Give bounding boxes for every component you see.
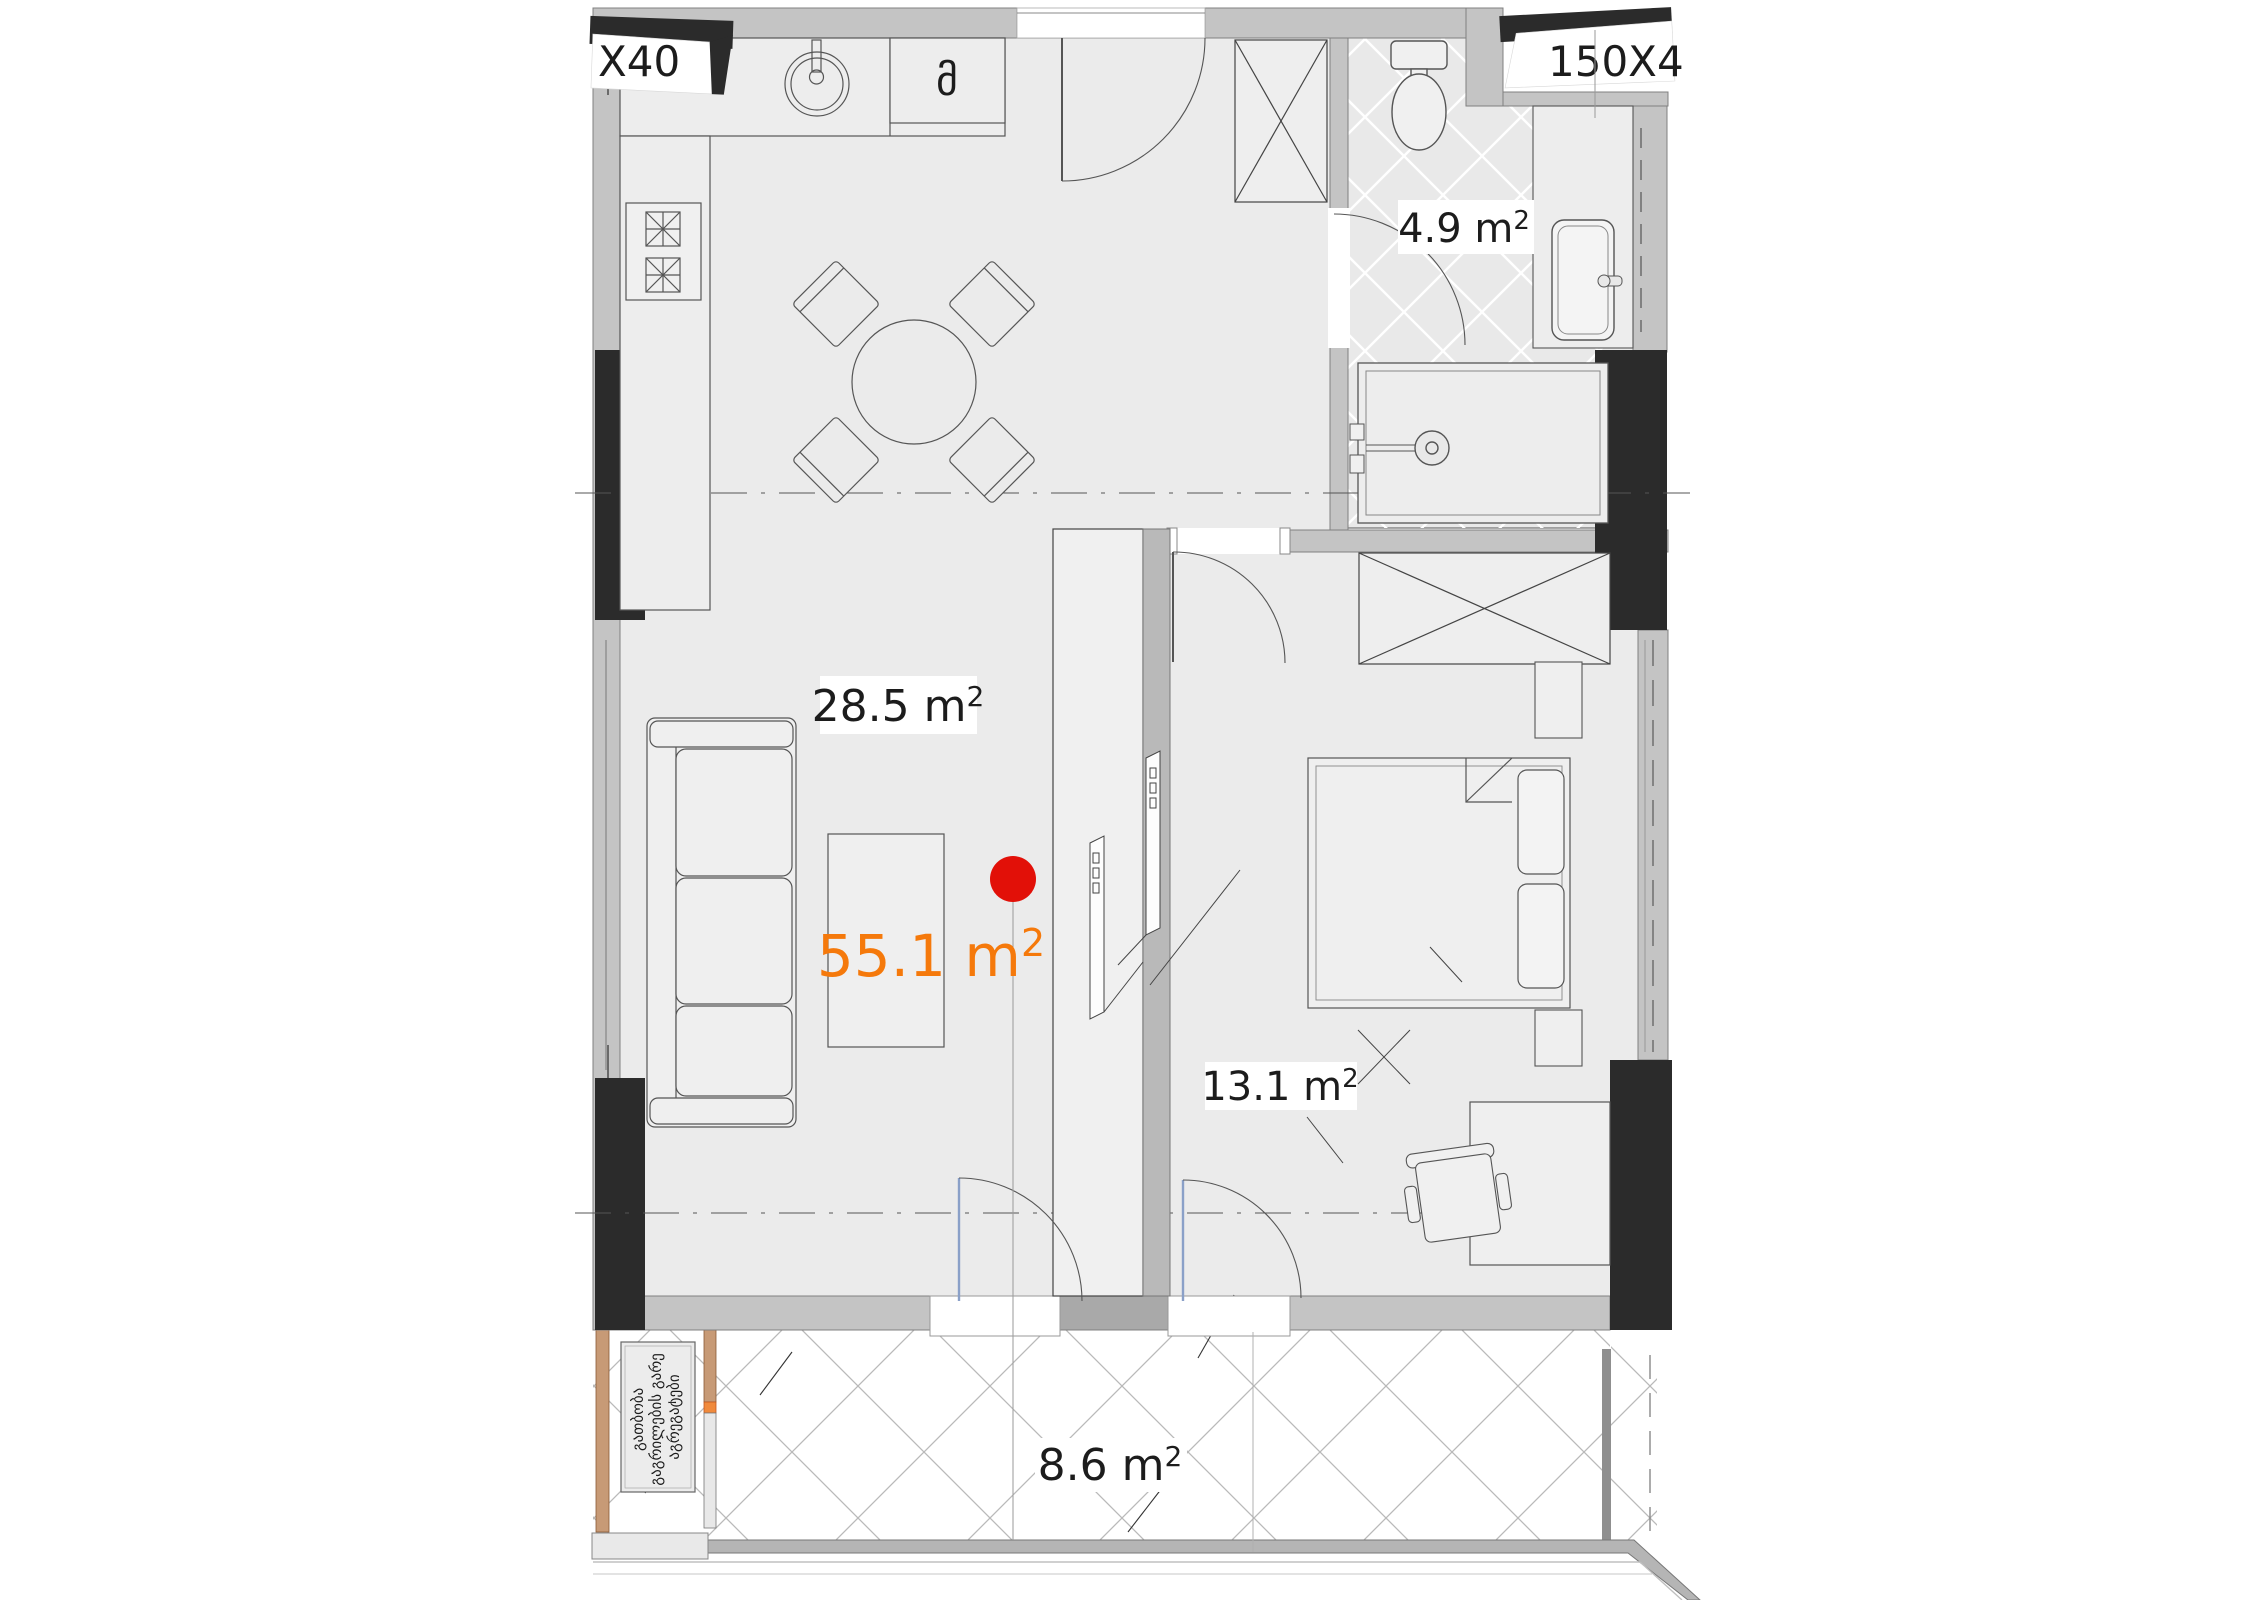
sofa [647,718,796,1127]
wardrobe [1359,553,1610,664]
wall-right-bathroom [1633,106,1667,352]
wall-top-right [1503,92,1668,106]
window-tag-left: X40 [588,16,733,95]
total-area-label: 55.1 m2 [817,921,1045,990]
pillow-1 [1518,770,1564,874]
shower [1350,363,1608,523]
window-tag-right-text: 150X4 [1548,37,1684,86]
location-marker-dot[interactable] [990,856,1036,902]
bedroom-door-opening [1167,528,1290,554]
column-left-bottom [595,1078,645,1330]
bed [1308,758,1570,1008]
balcony-note: გათბობა გაგრილების გარე აგრეგატები [621,1342,695,1492]
burner-1 [646,212,680,246]
balcony-hatch [593,1330,1663,1545]
bathroom-area-label: 4.9 m2 [1398,206,1530,252]
column-right-bottom [1610,1060,1672,1330]
living-area-label: 28.5 m2 [812,680,985,732]
bedroom-area-label: 13.1 m2 [1201,1064,1358,1110]
balcony-screen-connector [704,1402,716,1413]
balcony-screen-panel [704,1413,716,1528]
sofa-cushion-2 [676,878,792,1004]
bedroom-door-jamb-right [1280,528,1290,554]
floor-plan-canvas: მ [0,0,2262,1600]
wall-bottom-3 [1290,1296,1610,1330]
balcony-slab [592,1533,708,1559]
wall-step [1466,8,1503,106]
floor-plan-page: მ [0,0,2262,1600]
nightstand-bottom [1535,1010,1582,1066]
stove-icon [626,203,701,300]
appliance-symbol: მ [936,56,958,105]
bathroom-sink [1533,106,1633,348]
balcony-area-label: 8.6 m2 [1038,1440,1183,1491]
burner-2 [646,258,680,292]
sofa-cushion-1 [676,749,792,876]
balcony-door-sill-bedroom [1168,1296,1290,1336]
sofa-armrest-bottom [650,1098,793,1124]
balcony-door-sill-living [930,1296,1060,1336]
partition-wall [1053,529,1170,1296]
bathroom-door-opening [1328,208,1350,348]
nightstand-top [1535,662,1582,738]
wall-top-mid [1205,8,1466,38]
wall-bathroom-left-lower [1330,345,1348,546]
balcony-screen-left [596,1330,609,1532]
sofa-cushion-3 [676,1006,792,1096]
pillow-2 [1518,884,1564,988]
chair-seat [1415,1153,1501,1243]
wall-bottom-1 [620,1296,930,1330]
window-tag-left-text: X40 [598,37,680,86]
balcony-railing [708,1540,1700,1600]
wall-bathroom-left-upper [1330,38,1348,210]
balcony-screen-right [704,1330,716,1402]
sofa-armrest-top [650,721,793,747]
utility-shaft [1235,40,1327,202]
toilet-icon [1391,41,1447,150]
balcony-right-edge [1602,1349,1611,1542]
dining-table [852,320,976,444]
wall-bottom-2 [1060,1296,1168,1330]
